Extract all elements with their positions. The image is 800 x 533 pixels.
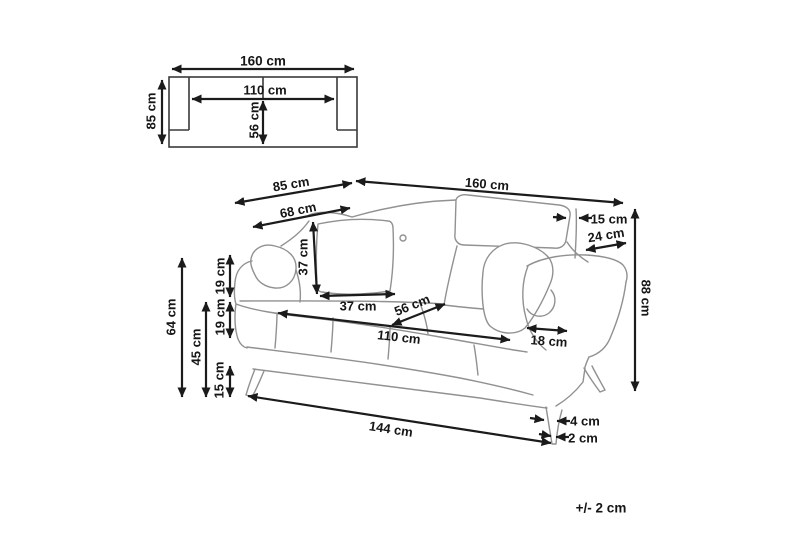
top-view-inner-width-label: 110 cm <box>243 83 286 98</box>
sofa-base-top-edge <box>247 347 533 395</box>
seat-height-label: 45 cm <box>189 329 204 366</box>
sofa-backrest-left-edge <box>444 246 457 305</box>
top-view-depth-label: 85 cm <box>144 93 159 130</box>
sofa-back-top-edge <box>309 200 456 217</box>
armrest-width-arrow <box>527 328 567 331</box>
sofa-left-arm-ear <box>251 245 296 288</box>
sofa-headrest-flap <box>455 195 570 248</box>
armrest-width-label: 18 cm <box>530 332 568 350</box>
backrest-upper-label: 19 cm <box>213 258 228 295</box>
seat-width-label: 110 cm <box>377 327 422 347</box>
sofa-seat-seam-4 <box>474 345 478 375</box>
height-label: 88 cm <box>638 280 653 317</box>
leg-top-arrow-left <box>530 418 544 420</box>
sofa-dimension-diagram: 160 cm 110 cm 85 cm 56 cm 85 cm 160 cm 6… <box>0 0 800 533</box>
cushion-width-label: 37 cm <box>340 299 377 314</box>
tolerance-note: +/- 2 cm <box>576 501 627 516</box>
cushion-width-arrow <box>320 294 395 296</box>
leg-width-top-label: 4 cm <box>570 414 600 429</box>
top-view-left-armrest <box>169 77 189 130</box>
dimension-labels: 85 cm 160 cm 68 cm 15 cm 24 cm 88 cm 37 … <box>164 174 654 516</box>
sofa-backrest-to-arm-edge <box>567 242 588 262</box>
sofa-seat-seam-2 <box>331 318 333 352</box>
top-view-width-label: 160 cm <box>240 54 286 69</box>
backrest-lower-label: 19 cm <box>213 299 228 336</box>
sofa-button-dot <box>400 235 406 241</box>
sofa-base-right-upper-edge <box>585 357 589 367</box>
sofa-right-arm-outer-edge <box>589 282 626 357</box>
top-view-schematic: 160 cm 110 cm 85 cm 56 cm <box>144 54 357 147</box>
sofa-leg-right-rear <box>584 366 605 392</box>
sofa-leg-left-front <box>246 369 264 397</box>
top-view-seat-depth-label: 56 cm <box>247 102 262 139</box>
sofa-back-outer-edge <box>575 209 576 258</box>
sofa-leg-right-front <box>546 407 562 444</box>
arm-height-label: 64 cm <box>164 299 179 336</box>
leg-bottom-arrow-left <box>539 434 551 436</box>
top-view-right-armrest <box>337 77 357 130</box>
sofa-base-right-lower-edge <box>556 368 585 406</box>
headrest-depth-label: 24 cm <box>587 225 626 246</box>
leg-height-label: 15 cm <box>212 362 227 399</box>
diagram-canvas: 160 cm 110 cm 85 cm 56 cm 85 cm 160 cm 6… <box>0 0 800 533</box>
sofa-drawing <box>234 195 627 444</box>
cushion-height-label: 37 cm <box>296 239 311 276</box>
leg-width-bottom-label: 2 cm <box>568 431 598 446</box>
sofa-left-pillow <box>316 219 393 294</box>
seat-depth-label: 56 cm <box>392 291 432 319</box>
headrest-inset-arrow-left <box>553 217 566 218</box>
sofa-base-bottom-edge <box>253 369 547 408</box>
sofa-right-pillow <box>482 243 553 333</box>
sofa-seat-seam-1 <box>275 313 277 348</box>
